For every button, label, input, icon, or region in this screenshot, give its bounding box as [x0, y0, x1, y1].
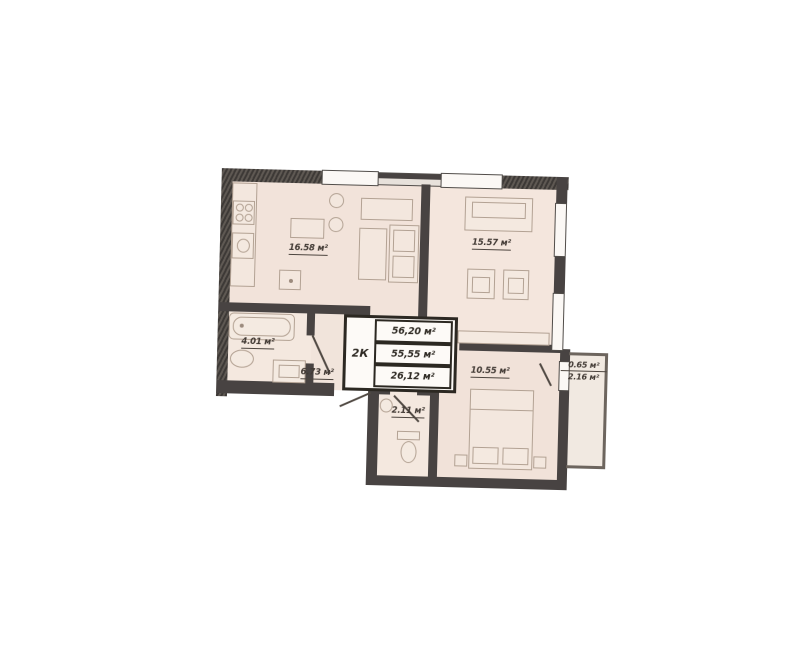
apartment-area-rows: 56,20 м² 55,55 м² 26,12 м² [373, 318, 455, 390]
stove [232, 200, 255, 225]
wall [222, 168, 324, 184]
floor-area-value: 55,55 м² [374, 342, 453, 367]
label-wc-area: 2.11 м² [391, 407, 424, 419]
label-balcony-area: 0.65 м² 2.16 м² [560, 359, 607, 384]
wall [557, 391, 569, 485]
page: { "unit": { "type_label": "2К" }, "summa… [0, 0, 809, 665]
kitchen-sink [232, 232, 255, 259]
armchair [467, 269, 496, 300]
label-balcony-area-full: 2.16 м² [568, 372, 599, 382]
apartment-type-label: 2К [345, 317, 375, 388]
wall [556, 177, 568, 205]
sofa [464, 196, 533, 232]
sofa-bed [358, 228, 387, 281]
dining-table [290, 218, 325, 239]
door-swing-entry [339, 392, 371, 407]
living-area-value: 26,12 м² [373, 364, 452, 389]
label-bedroom-area: 10.55 м² [470, 367, 509, 379]
cabinet [361, 198, 414, 221]
toilet-tank [397, 431, 420, 441]
nightstand [454, 454, 467, 466]
window [554, 203, 567, 257]
pillow [472, 447, 498, 465]
tv-stand [457, 330, 549, 345]
wall [307, 311, 316, 335]
nightstand [533, 456, 546, 468]
kitchen-island [279, 270, 302, 291]
floor-plan: 16.58 м² 15.57 м² 4.01 м² 6.73 м² 10.55 … [209, 164, 617, 499]
apartment-info-box: 2К 56,20 м² 55,55 м² 26,12 м² [342, 314, 458, 393]
pillow [502, 448, 528, 466]
label-living-room-area: 15.57 м² [472, 239, 511, 251]
balcony-wall [566, 465, 605, 469]
window [440, 173, 502, 190]
label-bathroom-area: 4.01 м² [241, 338, 274, 350]
armchair [503, 270, 530, 301]
label-kitchen-living-area: 16.58 м² [289, 244, 328, 256]
label-hallway-area: 6.73 м² [300, 368, 333, 380]
wall [554, 257, 566, 293]
window [551, 293, 565, 351]
wardrobe [388, 225, 420, 284]
wall [377, 172, 443, 187]
label-balcony-area-counted: 0.65 м² [561, 359, 607, 372]
window [321, 170, 378, 186]
total-area-value: 56,20 м² [374, 319, 453, 344]
